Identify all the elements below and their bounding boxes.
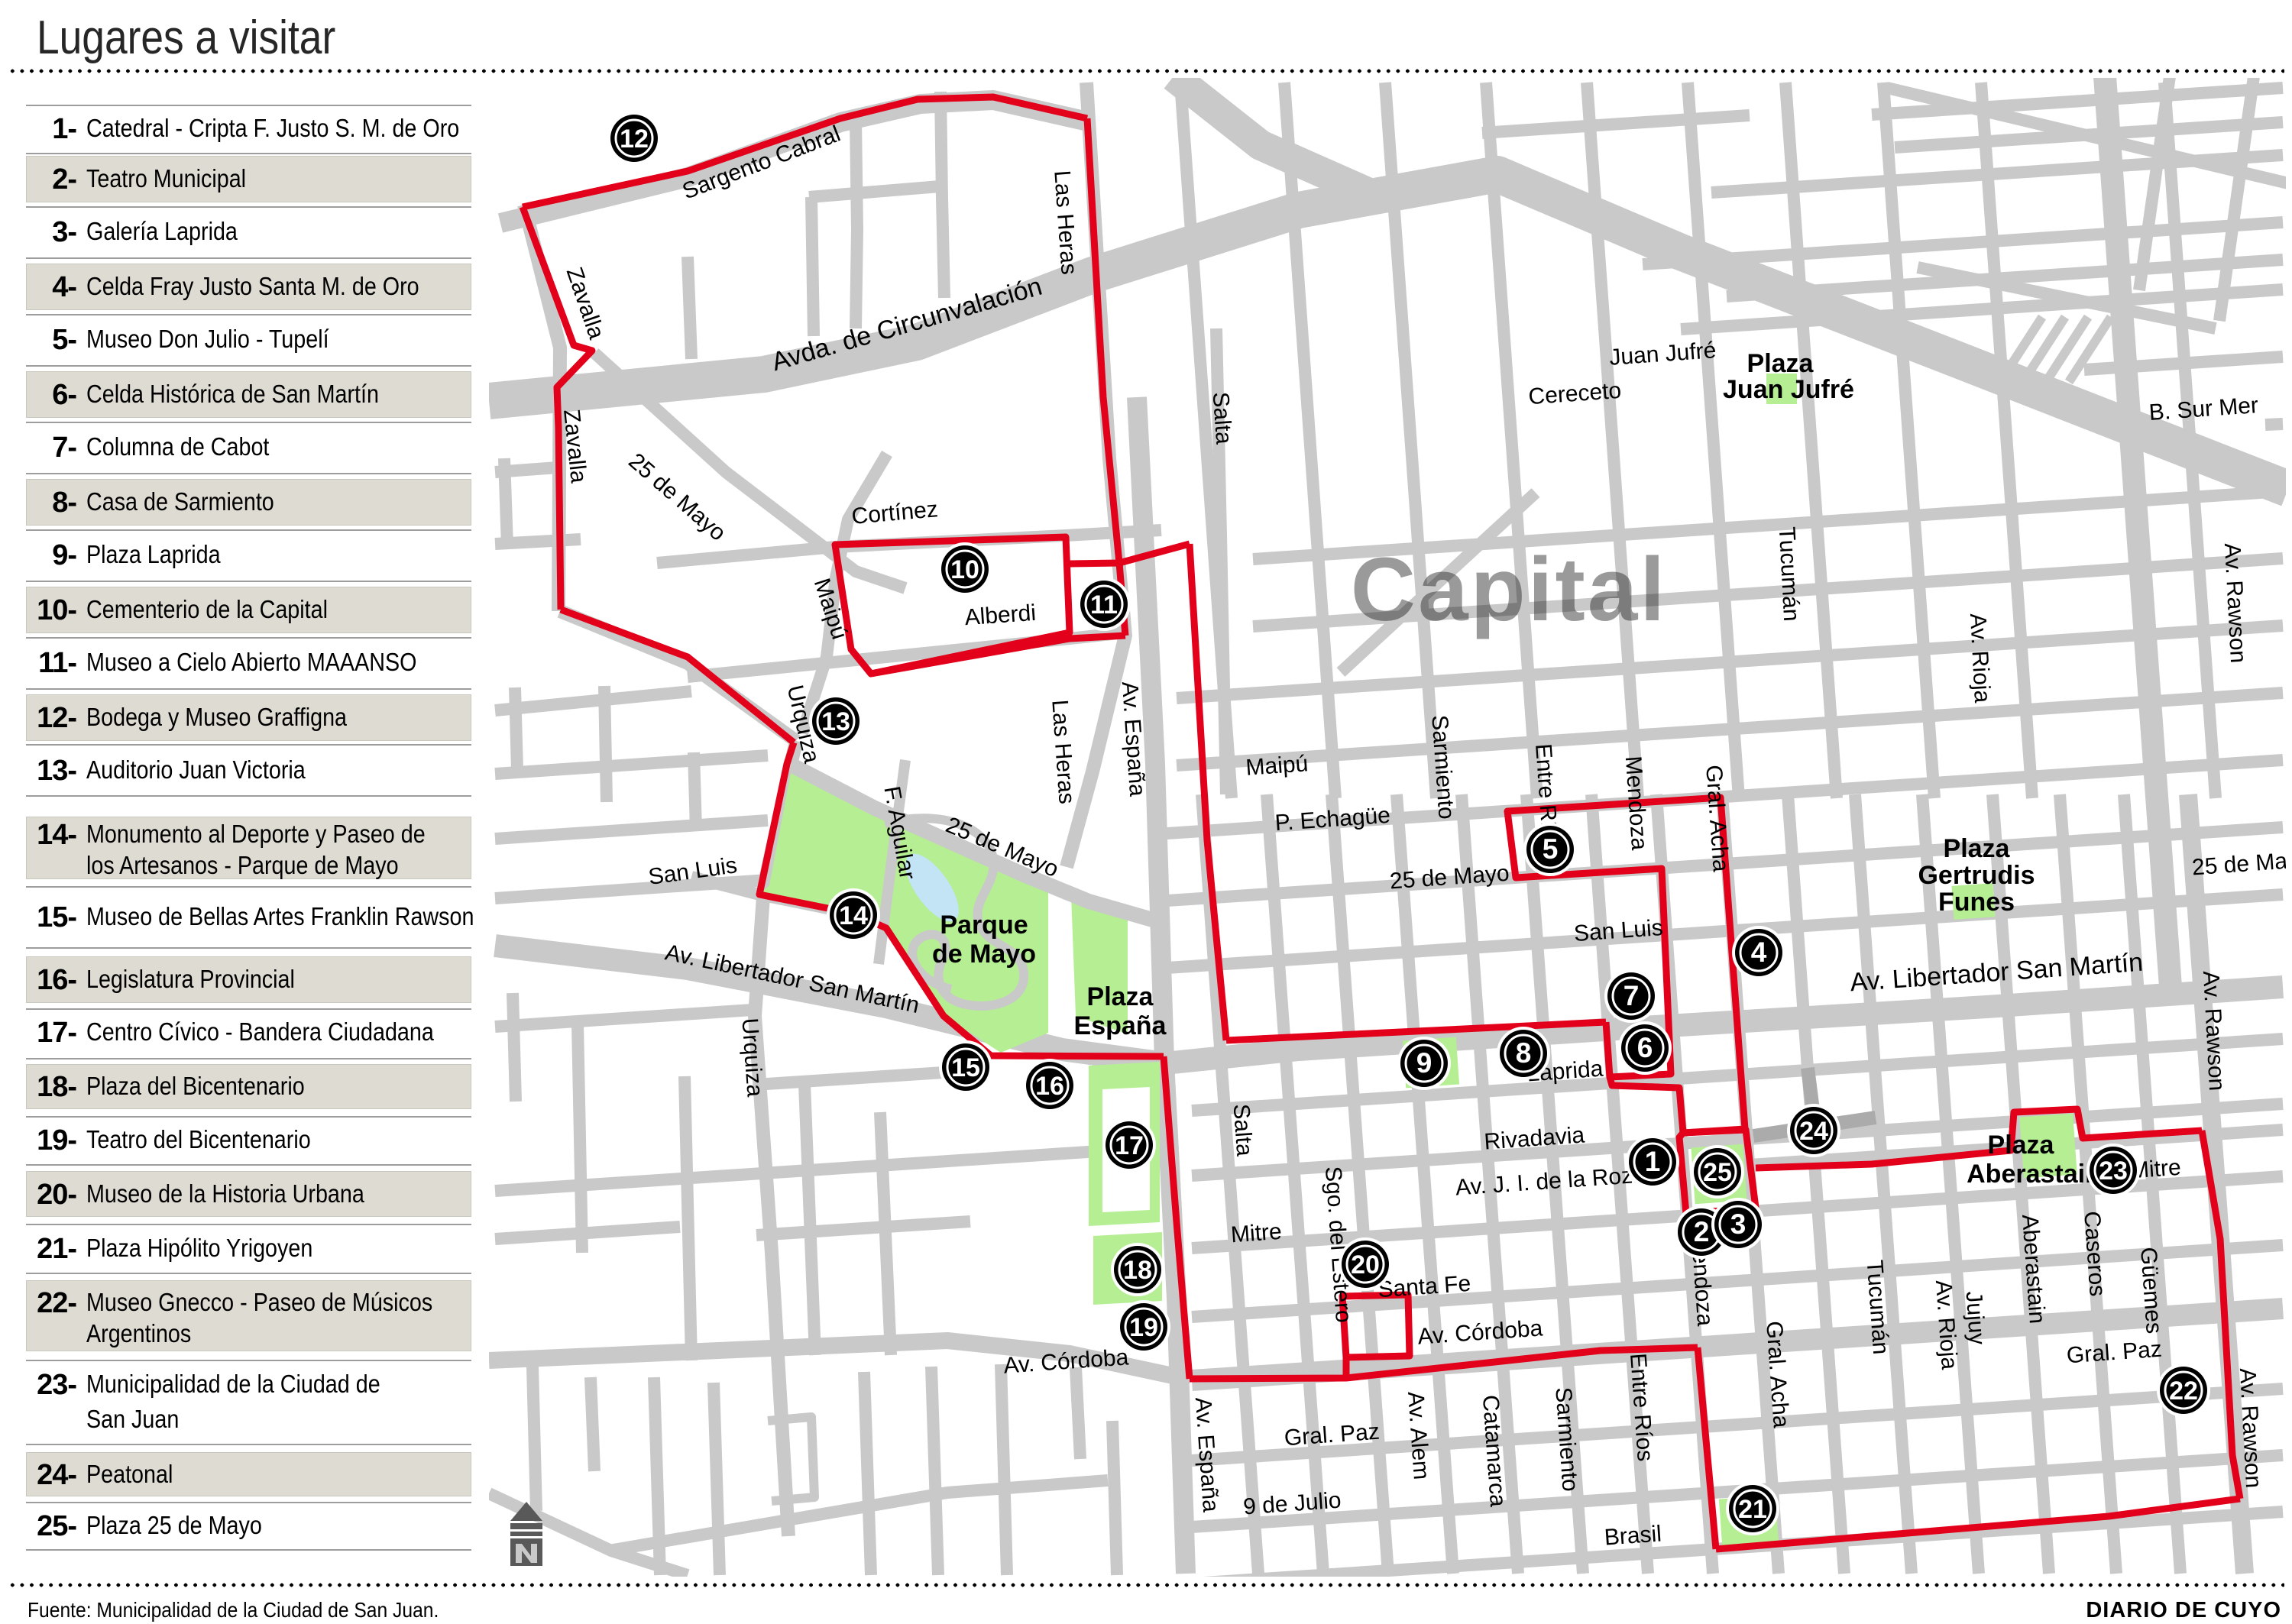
svg-text:Av. Rioja: Av. Rioja bbox=[1965, 613, 1995, 704]
svg-text:Aberastain: Aberastain bbox=[1967, 1160, 2101, 1189]
svg-text:14: 14 bbox=[839, 901, 868, 930]
svg-text:Plaza: Plaza bbox=[1747, 349, 1814, 378]
svg-text:11: 11 bbox=[1090, 590, 1118, 620]
svg-text:Salta: Salta bbox=[1208, 391, 1237, 445]
svg-text:Av. Rawson: Av. Rawson bbox=[2219, 542, 2251, 664]
svg-text:Las Heras: Las Heras bbox=[1049, 170, 1081, 276]
svg-text:25: 25 bbox=[1703, 1158, 1732, 1187]
svg-text:Las Heras: Las Heras bbox=[1047, 699, 1079, 805]
svg-text:Jujuy: Jujuy bbox=[1961, 1290, 1990, 1345]
svg-text:19: 19 bbox=[1129, 1313, 1158, 1342]
svg-text:13: 13 bbox=[821, 707, 850, 736]
svg-text:Caseros: Caseros bbox=[2079, 1210, 2110, 1297]
svg-text:Parque: Parque bbox=[940, 911, 1028, 940]
svg-text:Gral. Paz: Gral. Paz bbox=[2066, 1337, 2163, 1369]
svg-text:Entre Ríos: Entre Ríos bbox=[1625, 1352, 1658, 1462]
svg-text:Juan Jufré: Juan Jufré bbox=[1608, 338, 1717, 370]
svg-text:9: 9 bbox=[1416, 1047, 1432, 1079]
svg-text:Sarmiento: Sarmiento bbox=[1426, 714, 1458, 820]
svg-text:18: 18 bbox=[1123, 1256, 1152, 1285]
svg-text:Plaza: Plaza bbox=[1988, 1131, 2055, 1160]
svg-text:Funes: Funes bbox=[1938, 888, 2015, 917]
svg-text:Capital: Capital bbox=[1351, 539, 1667, 640]
svg-text:8: 8 bbox=[1516, 1037, 1532, 1069]
svg-text:Alberdi: Alberdi bbox=[964, 600, 1037, 630]
svg-text:Gral. Acha: Gral. Acha bbox=[1701, 764, 1734, 872]
svg-text:Tucumán: Tucumán bbox=[1774, 526, 1804, 623]
svg-text:Plaza: Plaza bbox=[1944, 834, 2011, 863]
svg-text:24: 24 bbox=[1799, 1117, 1828, 1146]
svg-text:B. Sur Mer: B. Sur Mer bbox=[2148, 393, 2259, 425]
svg-text:Sarmiento: Sarmiento bbox=[1550, 1386, 1582, 1493]
svg-text:5: 5 bbox=[1543, 833, 1559, 865]
svg-text:21: 21 bbox=[1738, 1495, 1767, 1524]
svg-text:20: 20 bbox=[1351, 1250, 1380, 1279]
svg-text:25 de Mayo: 25 de Mayo bbox=[2191, 847, 2292, 881]
svg-text:Av. España: Av. España bbox=[1190, 1396, 1223, 1513]
svg-text:Plaza: Plaza bbox=[1087, 982, 1154, 1011]
svg-text:15: 15 bbox=[951, 1053, 980, 1082]
svg-text:Av. Alem: Av. Alem bbox=[1403, 1391, 1434, 1481]
svg-text:1: 1 bbox=[1645, 1146, 1661, 1177]
svg-text:Aberastain: Aberastain bbox=[2017, 1214, 2050, 1325]
svg-text:de Mayo: de Mayo bbox=[932, 940, 1036, 969]
svg-text:10: 10 bbox=[950, 555, 979, 584]
svg-text:Urquiza: Urquiza bbox=[736, 1017, 767, 1098]
svg-text:Gertrudis: Gertrudis bbox=[1918, 861, 2035, 890]
svg-text:7: 7 bbox=[1623, 980, 1640, 1011]
svg-text:17: 17 bbox=[1115, 1131, 1144, 1160]
svg-text:Juan Jufré: Juan Jufré bbox=[1723, 375, 1854, 404]
svg-text:Salta: Salta bbox=[1229, 1103, 1258, 1157]
svg-text:3: 3 bbox=[1730, 1208, 1747, 1240]
svg-text:4: 4 bbox=[1751, 937, 1767, 968]
svg-text:6: 6 bbox=[1637, 1032, 1653, 1063]
svg-text:Mitre: Mitre bbox=[1230, 1219, 1283, 1248]
svg-text:España: España bbox=[1074, 1011, 1167, 1040]
svg-text:12: 12 bbox=[620, 125, 649, 154]
svg-text:Av. Rioja: Av. Rioja bbox=[1931, 1279, 1962, 1371]
svg-text:22: 22 bbox=[2169, 1377, 2198, 1406]
svg-text:Maipú: Maipú bbox=[1245, 751, 1309, 781]
svg-text:23: 23 bbox=[2099, 1157, 2128, 1186]
svg-text:Mendoza: Mendoza bbox=[1620, 755, 1653, 852]
svg-text:Brasil: Brasil bbox=[1604, 1521, 1662, 1550]
svg-text:16: 16 bbox=[1035, 1072, 1064, 1101]
svg-text:2: 2 bbox=[1694, 1216, 1710, 1247]
svg-text:P. Echagüe: P. Echagüe bbox=[1274, 803, 1391, 836]
